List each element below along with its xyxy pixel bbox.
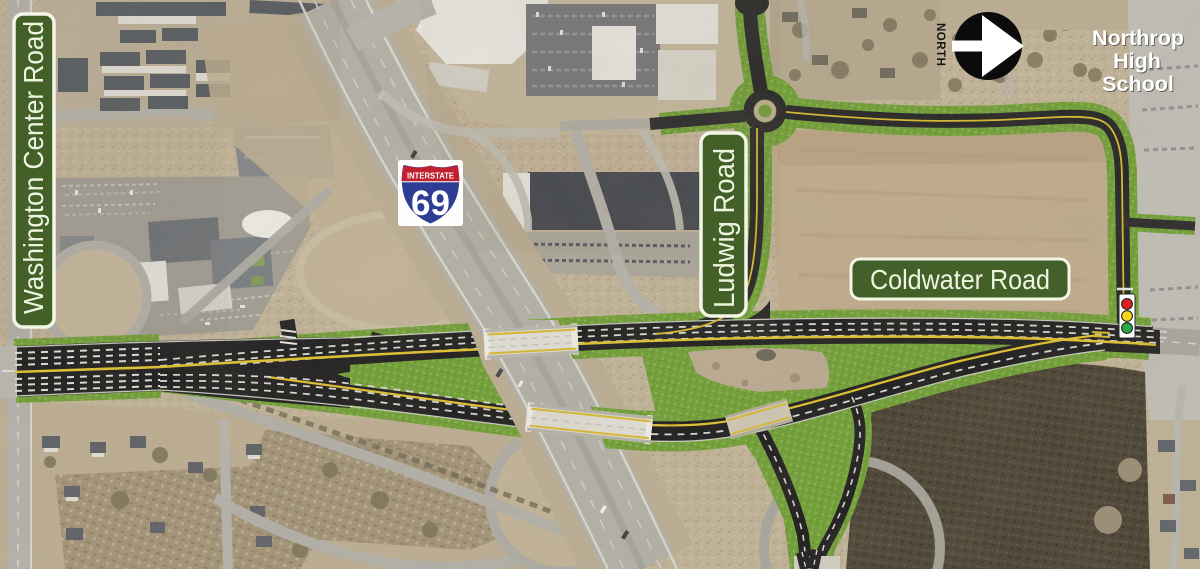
svg-text:NORTH: NORTH xyxy=(934,23,946,66)
svg-text:School: School xyxy=(1102,72,1174,96)
svg-text:Coldwater Road: Coldwater Road xyxy=(870,264,1050,295)
svg-text:Northrop: Northrop xyxy=(1092,26,1184,50)
svg-text:69: 69 xyxy=(411,184,450,223)
svg-text:Ludwig Road: Ludwig Road xyxy=(709,148,741,308)
svg-text:Washington Center Road: Washington Center Road xyxy=(18,21,49,314)
svg-text:INTERSTATE: INTERSTATE xyxy=(407,171,454,181)
svg-text:High: High xyxy=(1113,49,1161,73)
